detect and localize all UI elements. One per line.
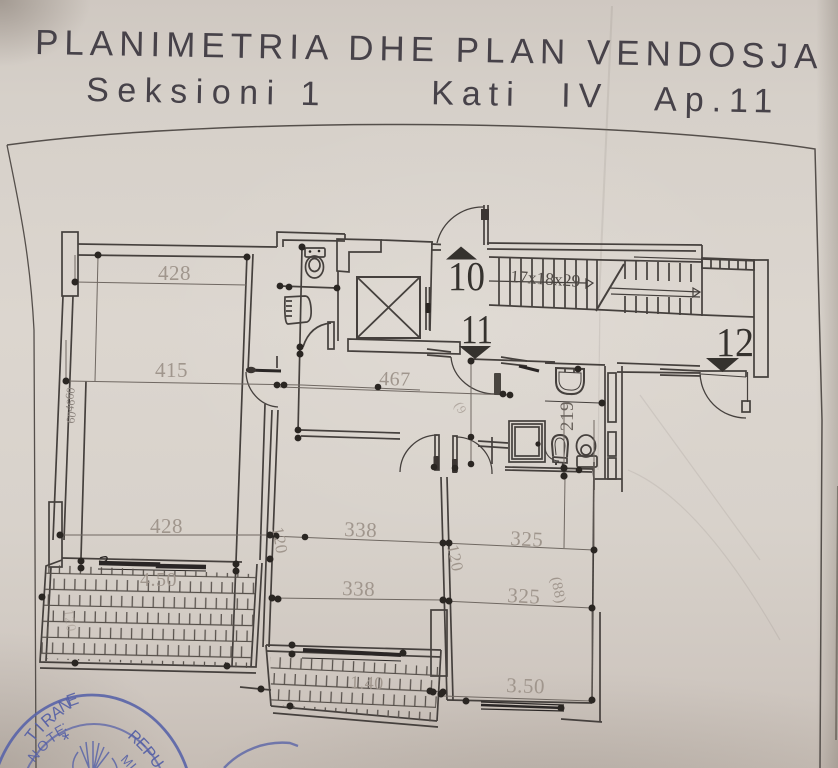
svg-text:338: 338 (344, 517, 378, 542)
svg-text:338: 338 (342, 576, 376, 601)
svg-text:4.50: 4.50 (140, 569, 177, 591)
svg-text:12: 12 (716, 319, 754, 365)
svg-text:PLANIMETRIA DHE PLAN VENDOSJA: PLANIMETRIA DHE PLAN VENDOSJA (35, 23, 824, 76)
svg-text:60: 60 (63, 410, 79, 424)
svg-text:120: 120 (60, 608, 78, 632)
svg-text:219: 219 (557, 401, 578, 431)
svg-text:(9: (9 (451, 399, 470, 417)
svg-text:11: 11 (461, 306, 493, 352)
svg-text:325: 325 (510, 526, 544, 552)
svg-text:Kati IV: Kati IV (431, 74, 610, 115)
svg-text:428: 428 (158, 261, 191, 285)
svg-text:120: 120 (443, 543, 467, 573)
svg-text:325: 325 (507, 583, 541, 609)
svg-text:Seksioni 1: Seksioni 1 (86, 71, 329, 113)
svg-text:(88): (88) (547, 576, 568, 606)
svg-text:467: 467 (379, 368, 411, 391)
svg-text:120: 120 (268, 525, 291, 555)
svg-text:Ap.11: Ap.11 (654, 80, 781, 120)
svg-text:428: 428 (150, 514, 183, 538)
svg-text:1.40: 1.40 (350, 672, 384, 693)
svg-text:*: * (60, 729, 72, 752)
svg-text:10: 10 (448, 253, 485, 299)
svg-text:415: 415 (155, 358, 188, 382)
svg-text:3.50: 3.50 (506, 673, 546, 698)
